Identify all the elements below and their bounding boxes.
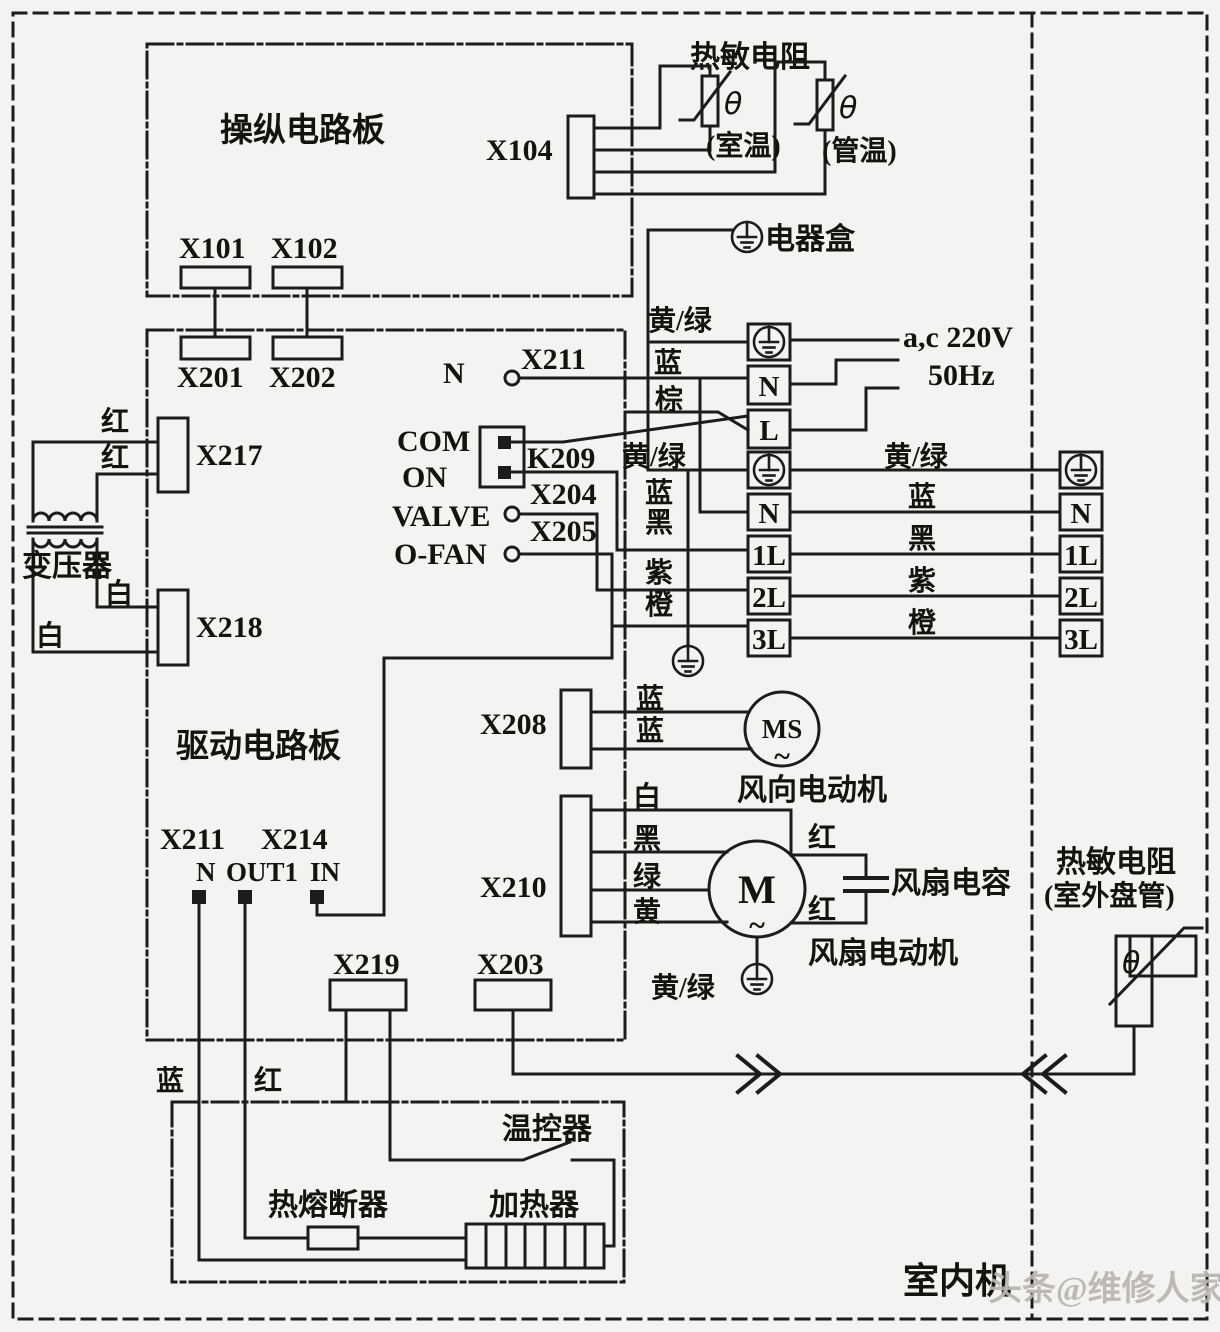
purple-right-label: 紫 [908,565,936,597]
blue-right-label: 蓝 [908,481,936,513]
white-m-label: 白 [633,780,661,813]
chassis-ground-icon [673,646,703,676]
connector-x203 [475,980,551,1010]
ms-tilde: ~ [774,740,790,773]
electric-box-ground: 电器盒 [648,222,856,470]
ofan-wire-orange [317,554,612,915]
supply-wires [790,340,898,430]
thermistor1-wire-b [594,126,710,150]
ofan-terminal-circle [505,547,519,561]
connector-x101 [181,267,250,288]
thermistor-title: 热敏电阻 [690,41,810,74]
brown-label: 棕 [655,383,683,416]
blk3-gnd-icon [1066,455,1096,485]
theta1-label: θ [724,87,742,122]
yellow-m-label: 黄 [633,896,661,928]
frequency-label: 50Hz [928,359,995,392]
room-temp-label: (室温) [706,129,781,162]
yg-right-label: 黄/绿 [884,441,949,473]
connector-x210 [561,796,591,936]
yg-mid-label: 黄/绿 [622,441,687,473]
connector-x219 [330,980,406,1010]
blk2-1l-label: 1L [752,540,786,572]
x219-label: X219 [333,948,400,981]
mains-l-label: L [759,415,778,447]
x204-label: X204 [530,478,597,511]
thermal-fuse-symbol [308,1227,358,1249]
fan-motor: X210 白 黑 绿 黄 M ~ 红 红 风扇电容 风扇电动机 黄/绿 [480,780,1011,1004]
drive-board-outline [147,330,625,1040]
control-board-label: 操纵电路板 [220,112,385,149]
swing-motor-label: 风向电动机 [737,774,887,807]
m-motor-text: M [738,867,776,912]
connector-x104 [568,116,594,198]
n-terminal-circle [505,371,519,385]
blk2-n-label: N [759,498,780,530]
blk2-3l-label: 3L [752,624,786,656]
black-m-label: 黑 [633,824,661,855]
in-terminal-pin [310,890,324,904]
x104-label: X104 [486,134,553,167]
thermal-fuse-label: 热熔断器 [268,1188,389,1222]
red-wire-label-2: 红 [101,441,129,474]
x219-pin-wires [346,1010,390,1160]
neutral-drop-wire [700,378,748,512]
red-m-label-1: 红 [808,821,836,854]
valve-label: VALVE [392,500,490,533]
n-terminal-label: N [196,857,216,887]
transformer: 变压器 红 红 白 白 X217 X218 [22,405,263,665]
blk3-2l-label: 2L [1064,582,1098,614]
blue-mid-label: 蓝 [645,477,673,509]
room-thermistor-strike [680,72,730,120]
connector-x217 [158,418,188,492]
outer-dashed-border [13,13,1207,1319]
x202-label: X202 [269,361,336,394]
ofan-label: O-FAN [394,538,487,571]
x218-label: X218 [196,611,263,644]
x211-bottom-label: X211 [160,823,225,856]
n-terminal-pin [192,890,206,904]
blk3-3l-label: 3L [1064,624,1098,656]
ac-voltage-label: a,c 220V [903,321,1013,354]
com-label: COM [397,425,470,458]
pipe-temp-label: (管温) [822,134,897,167]
x101-label: X101 [179,232,246,265]
x208-label: X208 [480,708,547,741]
black-mid-label: 黑 [645,508,673,539]
heater-hatch [486,1224,585,1268]
interconnect-wires: 黄/绿 蓝 黑 紫 橙 [790,441,1060,639]
x211-top-label: X211 [521,343,586,376]
x203-label: X203 [477,948,544,981]
k209-label: K209 [527,442,595,475]
electric-box-label: 电器盒 [765,222,856,256]
capacitor-plates [845,878,887,891]
heater-label: 加热器 [489,1189,580,1222]
blue-top-label: 蓝 [654,347,682,379]
com-wire [511,416,748,442]
purple-mid-label: 紫 [645,557,673,589]
transformer-primary-coil [33,513,97,521]
drive-board: 驱动电路板 X211 X214 N OUT1 IN X219 X203 [160,728,551,1160]
transformer-label: 变压器 [22,549,113,583]
out1-terminal-pin [238,890,252,904]
orange-mid-label: 橙 [645,589,674,621]
x205-label: X205 [530,515,597,548]
in-terminal-label: IN [310,857,341,887]
connector-x102 [273,267,342,288]
x210-label: X210 [480,871,547,904]
red-m-label-2: 红 [808,893,836,926]
diagram-borders [13,13,1207,1319]
outdoor-terminal-block: N 1L 2L 3L [1060,452,1102,656]
ms-wires [591,712,751,749]
blk2-2l-label: 2L [752,582,786,614]
k209-pin-on [498,466,511,479]
k209-pin-com [498,436,511,449]
drive-board-label: 驱动电路板 [176,728,341,765]
transformer-core [28,527,102,533]
connector-x201 [181,337,250,359]
orange-right-label: 橙 [908,607,937,639]
connector-x208 [561,690,591,768]
outdoor-thermistor-title: 热敏电阻 [1056,846,1176,879]
mains-n-label: N [759,371,780,403]
red-wire-label-1: 红 [101,405,129,438]
swing-motor: X208 蓝 蓝 MS ~ 风向电动机 [480,683,887,807]
x201-label: X201 [177,361,244,394]
mains-gnd-icon [754,327,784,357]
pipe-thermistor-strike [795,76,845,124]
indoor-unit-wiring-diagram: 操纵电路板 X101 X102 X201 X202 X104 热敏电阻 θ θ … [0,0,1220,1332]
green-m-label: 绿 [633,861,662,893]
outdoor-link-wire [513,1010,1134,1074]
wiring-diagram-canvas: 操纵电路板 X101 X102 X201 X202 X104 热敏电阻 θ θ … [0,0,1220,1332]
connector-x218 [158,590,188,665]
on-label: ON [402,461,447,494]
thermostat-label: 温控器 [502,1113,593,1146]
theta-out-label: θ [1122,946,1140,981]
blk2-gnd-icon [754,455,784,485]
transformer-secondary-coil [33,539,97,547]
ms-blue-label-1: 蓝 [636,683,664,715]
theta2-label: θ [839,91,857,126]
yg-m-label: 黄/绿 [651,972,716,1004]
mains-terminal-block: N L N X211 黄/绿 蓝 棕 a,c 220V 50Hz [443,305,1013,448]
white-wire-label-2: 白 [36,619,64,652]
fan-cap-label: 风扇电容 [891,867,1011,900]
outdoor-thermistor-subtitle: (室外盘管) [1044,879,1175,912]
footer: 室内机 头条@维修人家 [903,1261,1220,1308]
l-feed-wire-brown [625,412,748,430]
n-node-label: N [443,357,465,390]
red-bottom-label: 红 [254,1064,282,1097]
motor-ground-icon [742,964,772,994]
x217-label: X217 [196,439,263,472]
x214-label: X214 [261,823,328,856]
indoor-thermistors: 热敏电阻 θ θ (室温) (管温) [594,41,897,194]
blk3-n-label: N [1071,498,1092,530]
connector-x202 [273,337,342,359]
watermark: 头条@维修人家 [988,1270,1220,1308]
black-right-label: 黑 [908,524,936,555]
blue-bottom-label: 蓝 [156,1065,184,1097]
out1-terminal-label: OUT1 [226,857,298,887]
fan-motor-label: 风扇电动机 [808,937,958,970]
yg-top-label: 黄/绿 [648,305,713,337]
x102-label: X102 [271,232,338,265]
white-wire-label-1: 白 [105,577,133,610]
valve-terminal-circle [505,507,519,521]
electric-box-ground-icon [732,222,762,252]
ms-blue-label-2: 蓝 [636,715,664,747]
indoor-terminal-block: N 1L 2L 3L 黄/绿 蓝 黑 紫 橙 [622,441,790,676]
blk3-1l-label: 1L [1064,540,1098,572]
